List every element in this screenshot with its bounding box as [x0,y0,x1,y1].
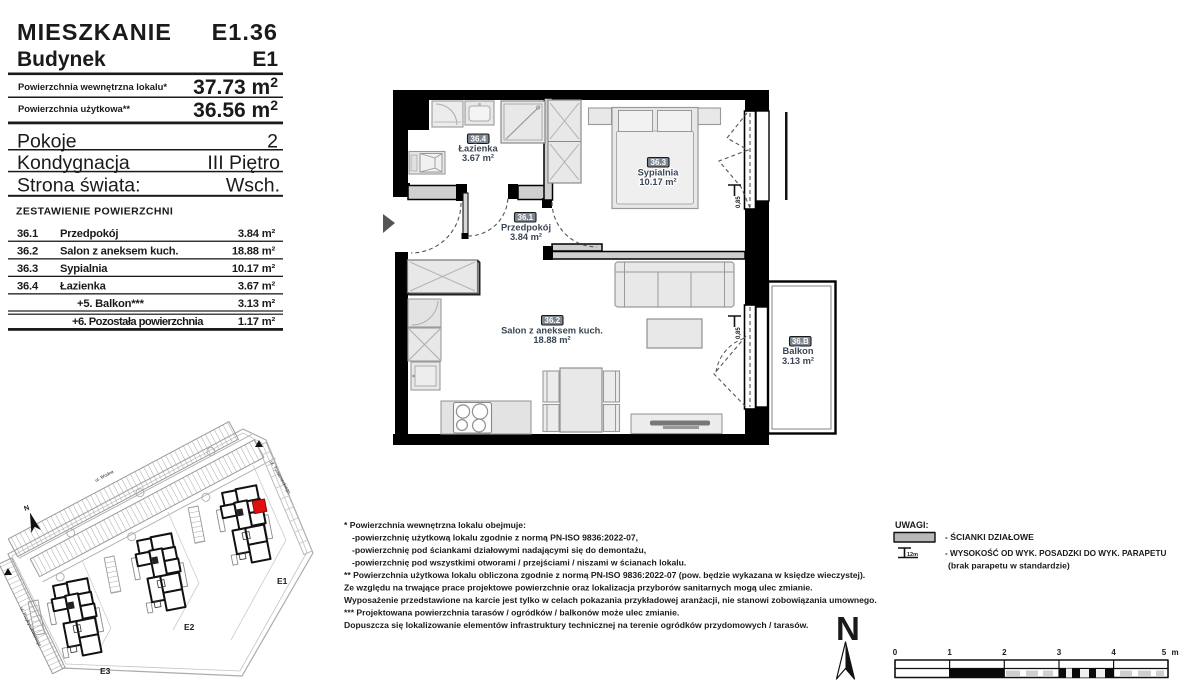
svg-text:- WYSOKOŚĆ OD WYK. POSADZKI DO: - WYSOKOŚĆ OD WYK. POSADZKI DO WYK. PARA… [945,547,1166,558]
svg-text:1.17 m²: 1.17 m² [238,316,276,328]
svg-text:2: 2 [1002,648,1007,657]
svg-text:ZESTAWIENIE POWIERZCHNI: ZESTAWIENIE POWIERZCHNI [16,206,173,218]
svg-text:m: m [1171,648,1178,657]
svg-text:Dopuszcza się lokalizowanie el: Dopuszcza się lokalizowanie elementów in… [344,620,808,630]
svg-text:36.2: 36.2 [17,246,38,258]
svg-text:3.84 m²: 3.84 m² [238,228,276,240]
svg-text:N: N [836,610,860,647]
svg-text:Przedpokój: Przedpokój [60,228,118,240]
svg-text:(brak parapetu w standardzie): (brak parapetu w standardzie) [948,561,1070,571]
svg-text:+6. Pozostała powierzchnia: +6. Pozostała powierzchnia [72,316,204,328]
svg-text:MIESZKANIE: MIESZKANIE [17,19,172,45]
svg-text:18.88 m²: 18.88 m² [232,246,276,258]
svg-text:0,85: 0,85 [736,196,742,208]
svg-text:Przedpokój: Przedpokój [501,223,551,233]
svg-text:37.73 m2: 37.73 m2 [193,74,278,99]
svg-text:36.1: 36.1 [17,228,38,240]
svg-text:18.88 m²: 18.88 m² [533,335,570,345]
svg-text:10.17 m²: 10.17 m² [639,177,676,187]
svg-text:5: 5 [1162,648,1167,657]
svg-text:Powierzchnia użytkowa**: Powierzchnia użytkowa** [18,103,130,114]
svg-text:Salon z aneksem kuch.: Salon z aneksem kuch. [501,326,603,336]
svg-text:3.13 m²: 3.13 m² [782,356,814,366]
svg-text:Łazienka: Łazienka [458,144,498,154]
svg-text:36.B: 36.B [792,337,809,346]
svg-text:UWAGI:: UWAGI: [895,520,929,530]
svg-text:-powierzchnię użytkową lokalu: -powierzchnię użytkową lokalu zgodnie z … [352,533,638,543]
svg-text:E2: E2 [184,622,195,632]
svg-text:36.4: 36.4 [471,135,487,144]
svg-text:* Powierzchnia wewnętrzna loka: * Powierzchnia wewnętrzna lokalu obejmuj… [344,520,526,530]
svg-text:Powierzchnia wewnętrzna lokalu: Powierzchnia wewnętrzna lokalu* [18,81,167,92]
svg-text:1: 1 [947,648,952,657]
svg-text:Balkon: Balkon [783,346,814,356]
svg-text:Salon z aneksem kuch.: Salon z aneksem kuch. [60,246,178,258]
svg-text:-powierzchnię pod wszystkimi o: -powierzchnię pod wszystkimi otworami / … [352,558,686,568]
svg-text:36.4: 36.4 [17,281,39,293]
svg-text:Strona świata:: Strona świata: [17,175,141,197]
svg-text:3.84 m²: 3.84 m² [510,232,542,242]
svg-text:E1: E1 [252,48,278,71]
svg-text:36.2: 36.2 [545,316,561,325]
svg-text:Wsch.: Wsch. [226,175,280,197]
svg-text:E1: E1 [277,576,288,586]
svg-text:36.3: 36.3 [651,158,667,167]
svg-text:- ŚCIANKI DZIAŁOWE: - ŚCIANKI DZIAŁOWE [945,531,1034,542]
svg-text:Łazienka: Łazienka [60,281,107,293]
svg-text:Sypialnia: Sypialnia [638,168,680,178]
svg-text:+5. Balkon***: +5. Balkon*** [77,298,145,310]
svg-text:0,85: 0,85 [736,327,742,339]
svg-text:10.17 m²: 10.17 m² [232,263,276,275]
svg-text:3.67 m²: 3.67 m² [462,153,494,163]
svg-text:3.13 m²: 3.13 m² [238,298,276,310]
svg-text:E3: E3 [100,666,111,676]
svg-text:Wyposażenie przedstawione na k: Wyposażenie przedstawione na karcie jest… [344,595,877,605]
svg-text:4: 4 [1111,648,1116,657]
svg-text:12m: 12m [907,552,918,558]
svg-text:** Powierzchnia użytkowa lokal: ** Powierzchnia użytkowa lokalu obliczon… [344,570,865,580]
svg-text:3.67 m²: 3.67 m² [238,281,276,293]
svg-text:Kondygnacja: Kondygnacja [17,152,130,174]
svg-text:-powierzchnię pod ściankami dz: -powierzchnię pod ściankami działowymi n… [352,545,646,555]
svg-text:Ze względu na trwające prace p: Ze względu na trwające prace projektowe … [344,583,813,593]
svg-text:Sypialnia: Sypialnia [60,263,108,275]
svg-text:E1.36: E1.36 [212,19,278,45]
svg-text:3: 3 [1057,648,1062,657]
svg-text:36.1: 36.1 [518,213,534,222]
svg-text:III Piętro: III Piętro [207,152,280,174]
svg-text:36.56 m2: 36.56 m2 [193,97,278,122]
svg-text:0: 0 [893,648,898,657]
svg-text:Budynek: Budynek [17,48,106,71]
svg-text:36.3: 36.3 [17,263,38,275]
svg-text:*** Projektowana powierzchnia: *** Projektowana powierzchnia tarasów / … [344,608,679,618]
